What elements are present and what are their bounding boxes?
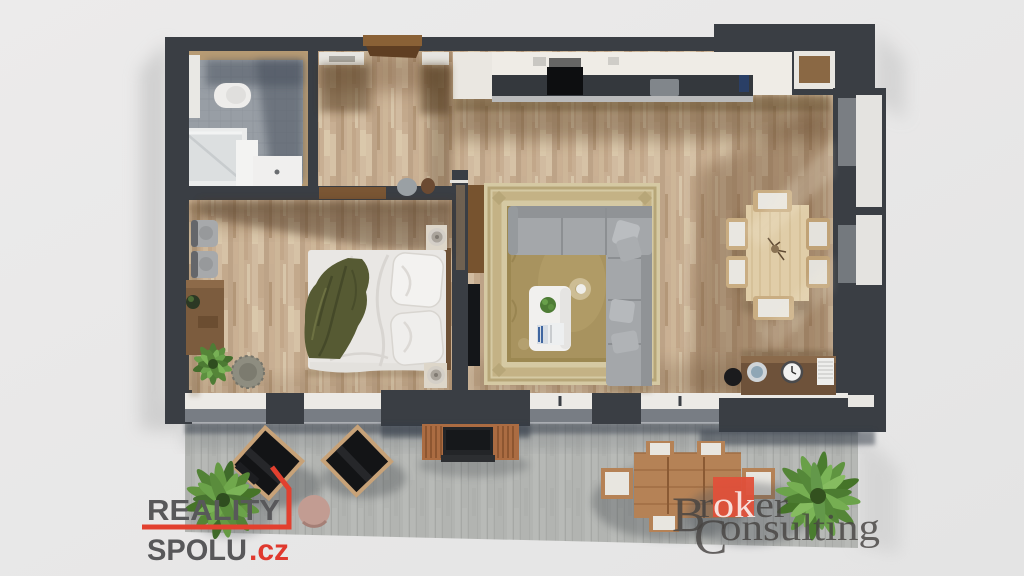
svg-text:REALITY: REALITY	[147, 495, 280, 527]
svg-text:onsulting: onsulting	[720, 507, 880, 549]
svg-text:.cz: .cz	[249, 534, 289, 567]
svg-text:SPOLU: SPOLU	[147, 534, 247, 567]
